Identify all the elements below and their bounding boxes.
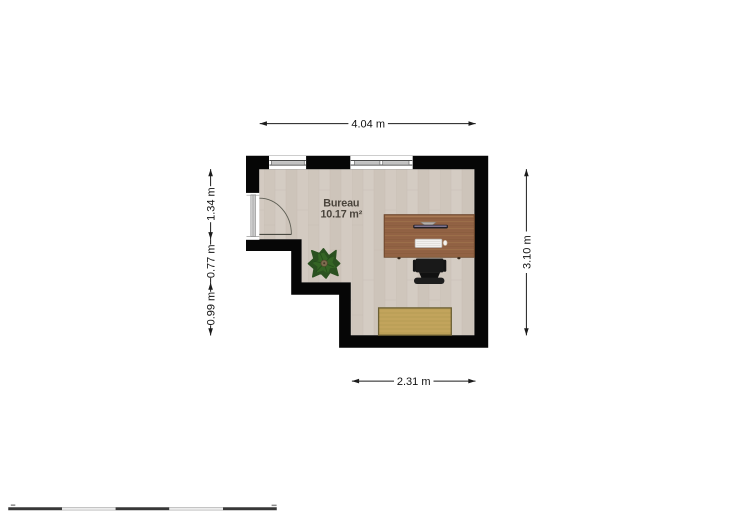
svg-text:4.04 m: 4.04 m (351, 119, 385, 131)
svg-text:2.31 m: 2.31 m (397, 376, 431, 388)
svg-text:3.10 m: 3.10 m (521, 235, 533, 269)
svg-text:1.34 m: 1.34 m (206, 187, 218, 221)
svg-text:0.77 m: 0.77 m (206, 244, 218, 278)
svg-text:0.99 m: 0.99 m (206, 292, 218, 326)
svg-text:Bureau: Bureau (323, 197, 359, 209)
svg-text:10.17 m²: 10.17 m² (320, 209, 362, 221)
